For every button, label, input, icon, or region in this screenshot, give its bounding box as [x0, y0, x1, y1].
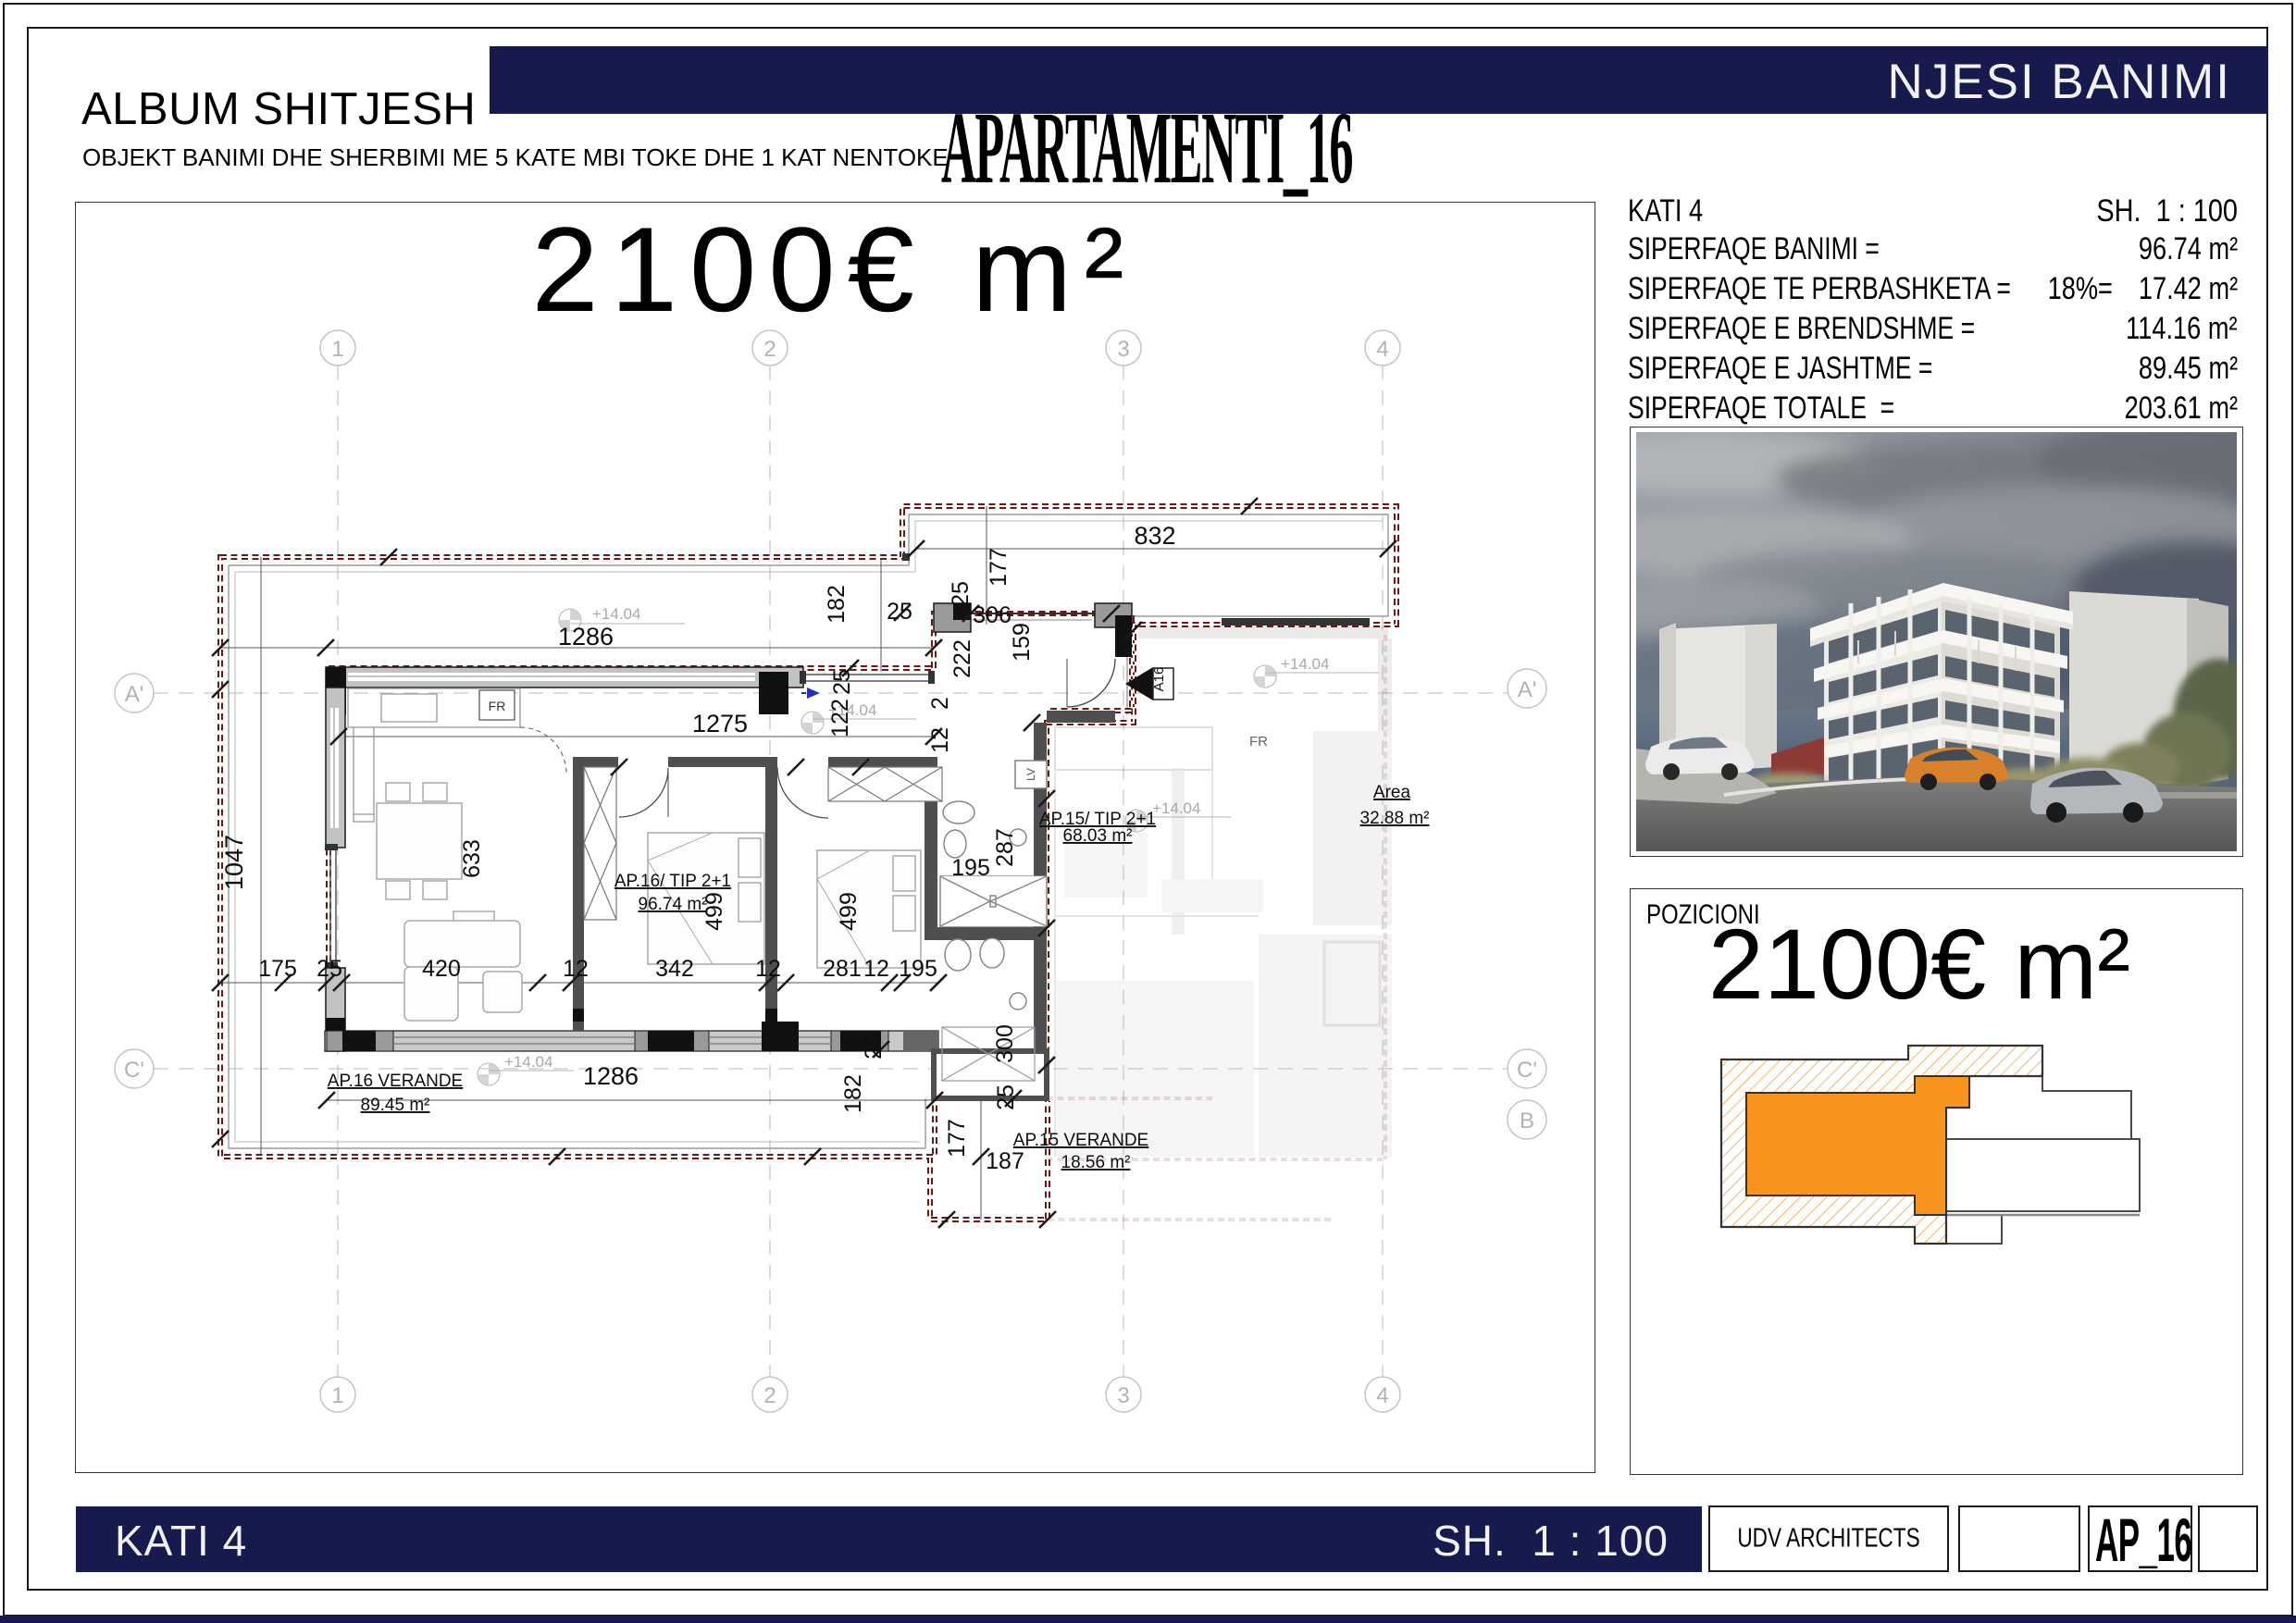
svg-text:1275: 1275 — [692, 710, 748, 737]
svg-text:1: 1 — [331, 337, 343, 362]
svg-text:LV: LV — [1024, 768, 1037, 781]
svg-text:25: 25 — [887, 599, 912, 625]
svg-text:195: 195 — [899, 956, 937, 982]
svg-text:175: 175 — [258, 956, 297, 982]
svg-text:25: 25 — [948, 581, 974, 607]
svg-text:25: 25 — [829, 669, 855, 695]
svg-text:287: 287 — [992, 828, 1018, 867]
svg-text:182: 182 — [840, 1074, 866, 1113]
svg-text:420: 420 — [422, 956, 461, 982]
svg-text:1047: 1047 — [220, 835, 248, 890]
svg-text:C': C' — [1517, 1058, 1537, 1083]
svg-text:12: 12 — [927, 727, 953, 753]
svg-text:222: 222 — [949, 639, 975, 678]
svg-text:12: 12 — [863, 956, 889, 982]
svg-text:3: 3 — [1117, 1383, 1129, 1408]
svg-text:342: 342 — [655, 956, 694, 982]
svg-text:B: B — [1520, 1109, 1534, 1134]
svg-text:18.56 m²: 18.56 m² — [1061, 1153, 1131, 1172]
svg-text:182: 182 — [824, 585, 850, 624]
svg-text:122: 122 — [827, 699, 853, 737]
svg-text:187: 187 — [986, 1148, 1024, 1174]
svg-text:1286: 1286 — [558, 623, 614, 650]
svg-text:177: 177 — [986, 548, 1011, 587]
svg-text:FR: FR — [489, 699, 506, 713]
svg-text:2: 2 — [763, 1383, 776, 1408]
svg-text:3: 3 — [1117, 337, 1129, 362]
svg-text:4: 4 — [1376, 337, 1388, 362]
svg-text:+14.04: +14.04 — [504, 1053, 552, 1071]
svg-text:12: 12 — [755, 956, 781, 982]
svg-text:499: 499 — [836, 892, 862, 931]
svg-text:306: 306 — [973, 602, 1011, 628]
svg-text:32.88 m²: 32.88 m² — [1360, 809, 1430, 828]
svg-text:25: 25 — [861, 1034, 887, 1059]
svg-text:Area: Area — [1373, 783, 1411, 802]
svg-text:177: 177 — [944, 1119, 970, 1158]
svg-text:1286: 1286 — [583, 1062, 639, 1090]
svg-text:2: 2 — [763, 337, 776, 362]
svg-text:89.45 m²: 89.45 m² — [361, 1096, 430, 1115]
svg-text:A': A' — [125, 682, 144, 707]
svg-text:FR: FR — [1249, 734, 1268, 750]
svg-text:281: 281 — [823, 956, 862, 982]
svg-text:A': A' — [1518, 677, 1537, 702]
svg-text:195: 195 — [951, 855, 990, 881]
svg-text:AP.16 VERANDE: AP.16 VERANDE — [328, 1072, 463, 1091]
svg-text:+14.04: +14.04 — [1152, 799, 1200, 817]
svg-text:25: 25 — [316, 956, 342, 982]
svg-text:4: 4 — [1376, 1383, 1388, 1408]
svg-text:96.74 m²: 96.74 m² — [639, 895, 708, 914]
svg-text:68.03 m²: 68.03 m² — [1063, 826, 1133, 846]
svg-text:C': C' — [124, 1058, 144, 1083]
svg-text:159: 159 — [1009, 623, 1035, 662]
svg-text:300: 300 — [992, 1024, 1018, 1063]
svg-text:A16: A16 — [1151, 667, 1167, 692]
svg-text:2: 2 — [927, 697, 953, 710]
svg-text:+14.04: +14.04 — [1281, 655, 1329, 673]
svg-text:832: 832 — [1134, 522, 1175, 550]
svg-text:+14.04: +14.04 — [592, 605, 640, 623]
svg-text:25: 25 — [993, 1084, 1019, 1110]
svg-text:633: 633 — [459, 839, 485, 878]
svg-text:12: 12 — [563, 956, 589, 982]
svg-text:AP.16/ TIP 2+1: AP.16/ TIP 2+1 — [614, 872, 731, 891]
svg-text:1: 1 — [331, 1383, 343, 1408]
svg-text:AP.15 VERANDE: AP.15 VERANDE — [1013, 1131, 1148, 1150]
